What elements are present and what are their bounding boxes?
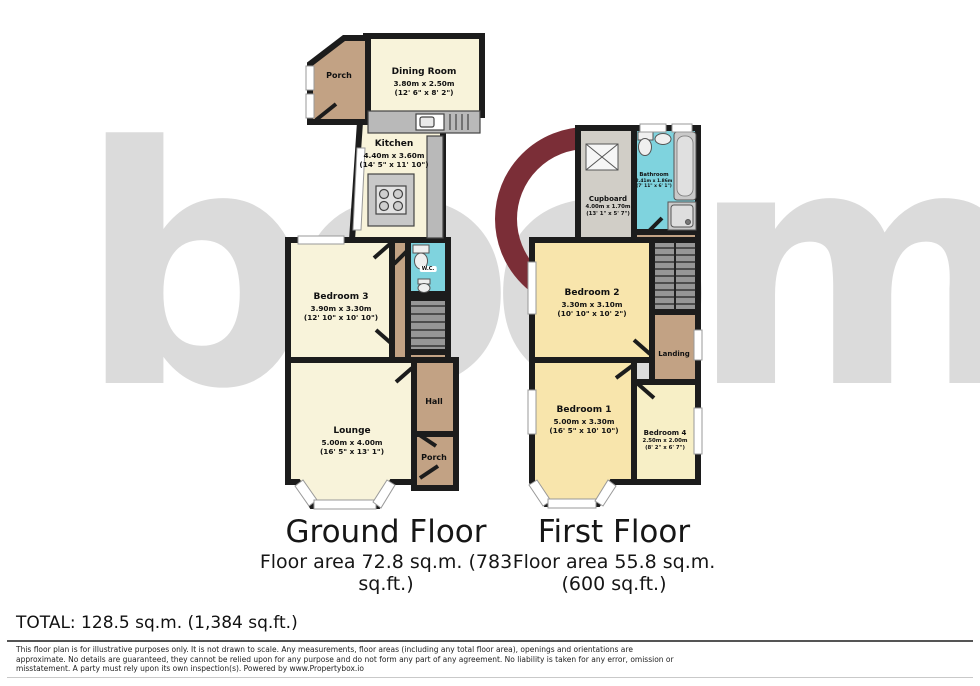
ground-floor-plan (288, 36, 482, 509)
room-label-dining: Dining Room3.80m x 2.50m(12' 6" x 8' 2") (392, 67, 457, 97)
shower-icon (668, 202, 696, 230)
disclaimer-line1: This floor plan is for illustrative purp… (16, 645, 966, 655)
room-label-cupboard: Cupboard4.00m x 1.70m(13' 1" x 5' 7") (585, 195, 630, 218)
room-label-bedroom1: Bedroom 15.00m x 3.30m(16' 5" x 10' 10") (549, 405, 618, 435)
toilet-icon (638, 132, 653, 156)
room-label-lounge: Lounge5.00m x 4.00m(16' 5" x 13' 1") (320, 426, 384, 456)
disclaimer-line3: misstatement. A party must rely upon its… (16, 664, 966, 674)
floorplan-page: boom (0, 0, 980, 686)
room-label-porch-top: Porch (326, 71, 352, 81)
room-label-bedroom3: Bedroom 33.90m x 3.30m(12' 10" x 10' 10"… (304, 292, 378, 322)
room-label-wc: W.C. (420, 266, 437, 272)
room-label-hall: Hall (425, 397, 443, 407)
ground-floor-title: Ground Floor (285, 514, 486, 550)
total-area-text: TOTAL: 128.5 sq.m. (1,384 sq.ft.) (16, 613, 298, 633)
divider-line (7, 677, 973, 678)
room-landing (652, 308, 698, 388)
divider-line (7, 640, 973, 642)
first-floor-area-line1: Floor area 55.8 sq.m. (513, 551, 716, 573)
first-floor-title: First Floor (538, 514, 690, 550)
ground-floor-area-line1: Floor area 72.8 sq.m. (783 (260, 551, 512, 573)
stairs-first-icon (652, 240, 698, 312)
room-label-bathroom: Bathroom2.41m x 1.86m(7' 11" x 6' 1") (636, 172, 673, 190)
ground-floor-area-line2: sq.ft.) (260, 573, 512, 595)
bathtub-icon (674, 132, 696, 200)
room-label-landing: Landing (658, 350, 690, 359)
disclaimer-line2: approximate. No details are guaranteed, … (16, 655, 966, 665)
stairs-ground-icon (408, 298, 448, 352)
first-floor-area: Floor area 55.8 sq.m. (600 sq.ft.) (513, 551, 716, 595)
kitchen-island-hob-icon (368, 174, 414, 226)
disclaimer-text: This floor plan is for illustrative purp… (16, 645, 966, 674)
sink-icon (655, 134, 671, 145)
room-label-bedroom4: Bedroom 42.50m x 2.00m(8' 2" x 6' 7") (642, 429, 687, 452)
room-label-kitchen: Kitchen4.40m x 3.60m(14' 5" x 11' 10") (359, 139, 428, 169)
room-label-porch-bottom: Porch (421, 453, 447, 463)
room-label-bedroom2: Bedroom 23.30m x 3.10m(10' 10" x 10' 2") (557, 288, 626, 318)
first-floor-area-line2: (600 sq.ft.) (513, 573, 716, 595)
ground-floor-area: Floor area 72.8 sq.m. (783 sq.ft.) (260, 551, 512, 595)
sink-icon (418, 279, 430, 293)
storage-box-icon (586, 144, 618, 170)
